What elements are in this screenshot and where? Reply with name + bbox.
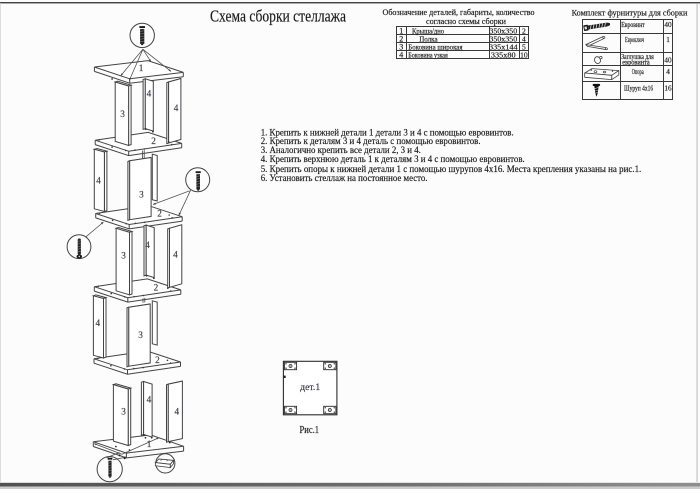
svg-text:Опора: Опора — [632, 68, 644, 76]
svg-text:10: 10 — [520, 51, 528, 60]
svg-text:4: 4 — [666, 68, 670, 76]
svg-text:4: 4 — [145, 240, 150, 250]
svg-text:3: 3 — [121, 406, 126, 416]
svg-text:1: 1 — [139, 63, 144, 73]
svg-text:4: 4 — [175, 406, 180, 416]
svg-text:Схема сборки стеллажа: Схема сборки стеллажа — [210, 6, 347, 25]
svg-text:евровинта: евровинта — [622, 59, 650, 67]
svg-text:4: 4 — [173, 250, 178, 260]
svg-text:2: 2 — [155, 355, 160, 365]
svg-text:3: 3 — [139, 190, 144, 200]
svg-text:4: 4 — [96, 318, 101, 328]
svg-text:335х80: 335х80 — [491, 51, 516, 60]
svg-text:6. Установить стеллаж на посто: 6. Установить стеллаж на постоянное мест… — [261, 174, 428, 184]
svg-text:4: 4 — [399, 51, 403, 60]
svg-text:Боковина узкая: Боковина узкая — [408, 51, 448, 60]
svg-text:Евровинт: Евровинт — [621, 21, 645, 29]
svg-text:4: 4 — [174, 103, 179, 113]
svg-text:Рис.1: Рис.1 — [300, 424, 320, 436]
svg-text:Комплект фурнитуры для сборки: Комплект фурнитуры для сборки — [572, 8, 688, 17]
svg-text:16: 16 — [664, 84, 672, 92]
svg-text:40: 40 — [664, 57, 672, 65]
svg-text:1: 1 — [666, 36, 670, 44]
svg-text:Обозначение деталей, габариты,: Обозначение деталей, габариты, количеств… — [383, 8, 535, 17]
svg-text:Евроключ: Евроключ — [625, 36, 644, 44]
svg-text:4: 4 — [147, 395, 152, 405]
svg-text:4: 4 — [147, 89, 152, 99]
svg-text:2: 2 — [157, 208, 162, 218]
svg-text:Шуруп 4х16: Шуруп 4х16 — [624, 84, 654, 92]
svg-text:4. Крепить верхнюю деталь 1 к: 4. Крепить верхнюю деталь 1 к деталям 3 … — [261, 155, 525, 165]
svg-text:40: 40 — [664, 21, 672, 29]
svg-text:3: 3 — [138, 330, 143, 340]
svg-text:3: 3 — [120, 109, 125, 119]
svg-text:2: 2 — [154, 283, 159, 293]
svg-text:2: 2 — [151, 136, 156, 146]
svg-text:дет.1: дет.1 — [300, 383, 320, 393]
svg-text:4: 4 — [96, 175, 101, 185]
svg-text:согласно схемы сборки: согласно схемы сборки — [426, 17, 506, 26]
svg-text:3: 3 — [121, 251, 126, 261]
svg-text:1: 1 — [147, 439, 152, 449]
